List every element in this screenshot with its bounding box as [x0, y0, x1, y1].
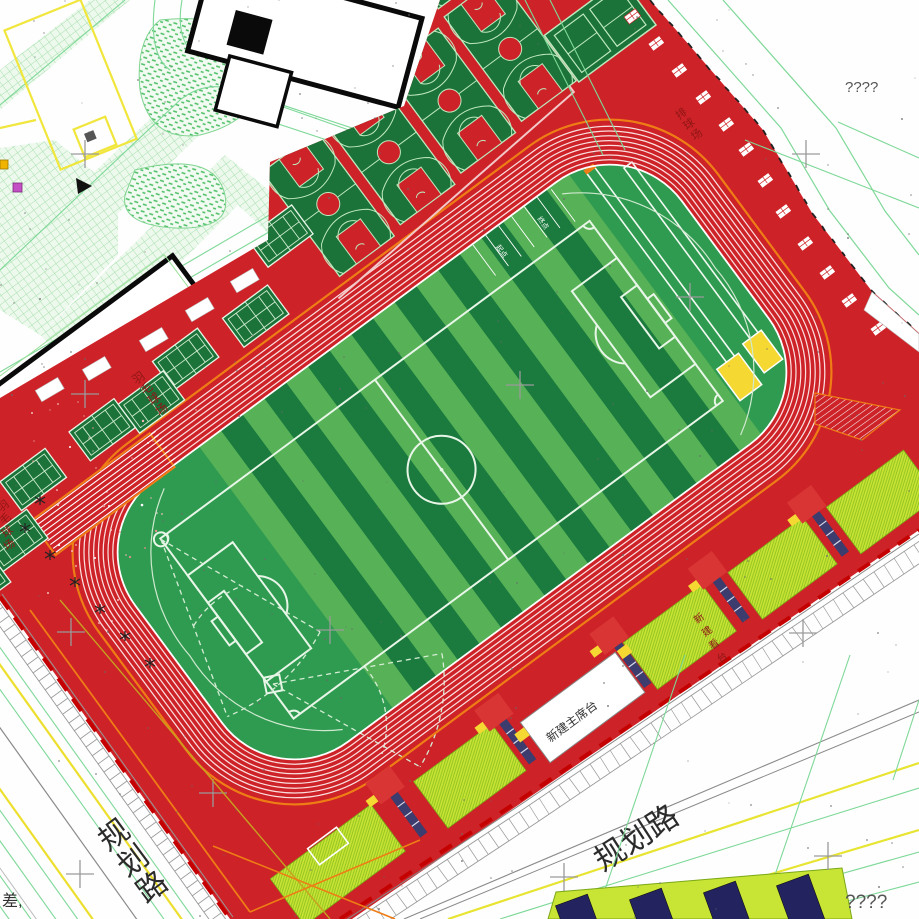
svg-text:????: ???? [845, 79, 878, 96]
svg-text:????: ???? [845, 892, 887, 913]
svg-text:差,: 差, [2, 892, 22, 910]
